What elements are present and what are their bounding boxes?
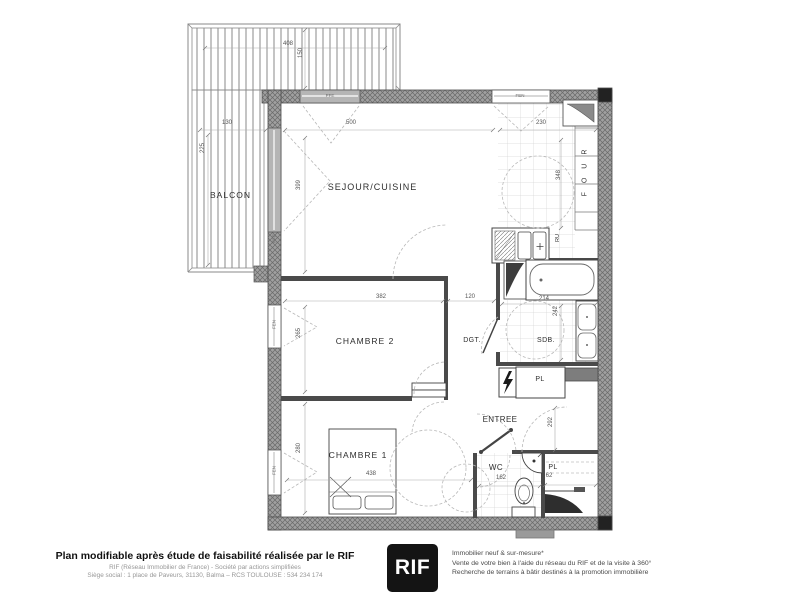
room-label-chambre1: CHAMBRE 1 <box>318 450 398 460</box>
room-label-sejour-cuisine: SEJOUR/CUISINE <box>310 182 435 192</box>
footer-company-info: RIF (Réseau Immobilier de France) - Soci… <box>40 564 370 580</box>
electrical-panel <box>499 368 516 397</box>
footer-plan-note: Plan modifiable après étude de faisabili… <box>55 550 355 562</box>
dim-cuisine-depth: 348 <box>556 164 562 186</box>
opening-label-fen-chambre1: FEN <box>272 463 277 479</box>
opening-label-fen-chambre2: FEN <box>272 317 277 333</box>
opening-label-pfe-balcon: PFE <box>272 231 277 247</box>
vanity-double-basin <box>576 301 598 361</box>
oven-label: FOUR <box>582 139 589 199</box>
dim-cuisine-width: 230 <box>528 120 554 126</box>
dim-pl-width: 62 <box>540 473 558 479</box>
opening-label-pfe-top: PFE <box>317 93 343 98</box>
room-label-wc: WC <box>484 463 508 472</box>
dim-balcon-depth: 225 <box>200 137 206 159</box>
dim-balcon-return: 150 <box>298 42 304 64</box>
dim-entree-depth: 292 <box>548 411 554 433</box>
dim-wc-width: 162 <box>490 475 512 481</box>
dim-dgt-width: 120 <box>458 294 482 300</box>
opening-label-fen-top: FEN <box>507 93 533 98</box>
dim-sejour-depth: 399 <box>296 174 302 196</box>
dim-chambre1-width: 438 <box>358 471 384 477</box>
dim-chambre2-width: 382 <box>368 294 394 300</box>
room-label-chambre2: CHAMBRE 2 <box>325 336 405 346</box>
kitchen-sink <box>492 228 549 263</box>
footer-company-line2: Siège social : 1 place de Paveurs, 31130… <box>40 572 370 580</box>
room-label-dgt: DGT. <box>452 337 492 344</box>
dim-sejour-width: 500 <box>336 120 366 126</box>
room-label-entree: ENTREE <box>470 415 530 424</box>
rif-logo-text: RIF <box>395 556 430 580</box>
floor-plan-drawing <box>0 0 800 600</box>
room-label-pl1: PL <box>530 376 550 383</box>
footer-service-line2: Vente de votre bien à l'aide du réseau d… <box>452 559 651 569</box>
technical-shaft <box>504 261 526 299</box>
room-label-sdb: SDB. <box>526 337 566 344</box>
dim-balcon-width2: 130 <box>212 120 242 126</box>
footer-service-line1: Immobilier neuf & sur-mesure* <box>452 549 651 559</box>
dim-chambre2-depth: 265 <box>296 322 302 344</box>
footer-company-line1: RIF (Réseau Immobilier de France) - Soci… <box>40 564 370 572</box>
room-label-pl2: PL <box>544 464 562 471</box>
dim-chambre1-depth: 280 <box>296 437 302 459</box>
room-label-balcon: BALCON <box>193 190 268 200</box>
balcony-deck <box>188 24 400 282</box>
turning-circle-chambre1 <box>390 430 466 506</box>
roller-shutter-box <box>563 100 598 126</box>
bathtub <box>526 260 598 300</box>
rif-logo: RIF <box>387 544 438 592</box>
footer-services: Immobilier neuf & sur-mesure* Vente de v… <box>452 549 651 578</box>
dim-sdb-depth: 242 <box>553 301 559 321</box>
door-pfe-balcony <box>268 128 281 232</box>
footer-service-line3: Recherche de terrains à bâtir destinés à… <box>452 568 651 578</box>
floor-plan-page: BALCON SEJOUR/CUISINE CHAMBRE 2 DGT. SDB… <box>0 0 800 600</box>
ru-label: RU <box>555 229 561 247</box>
